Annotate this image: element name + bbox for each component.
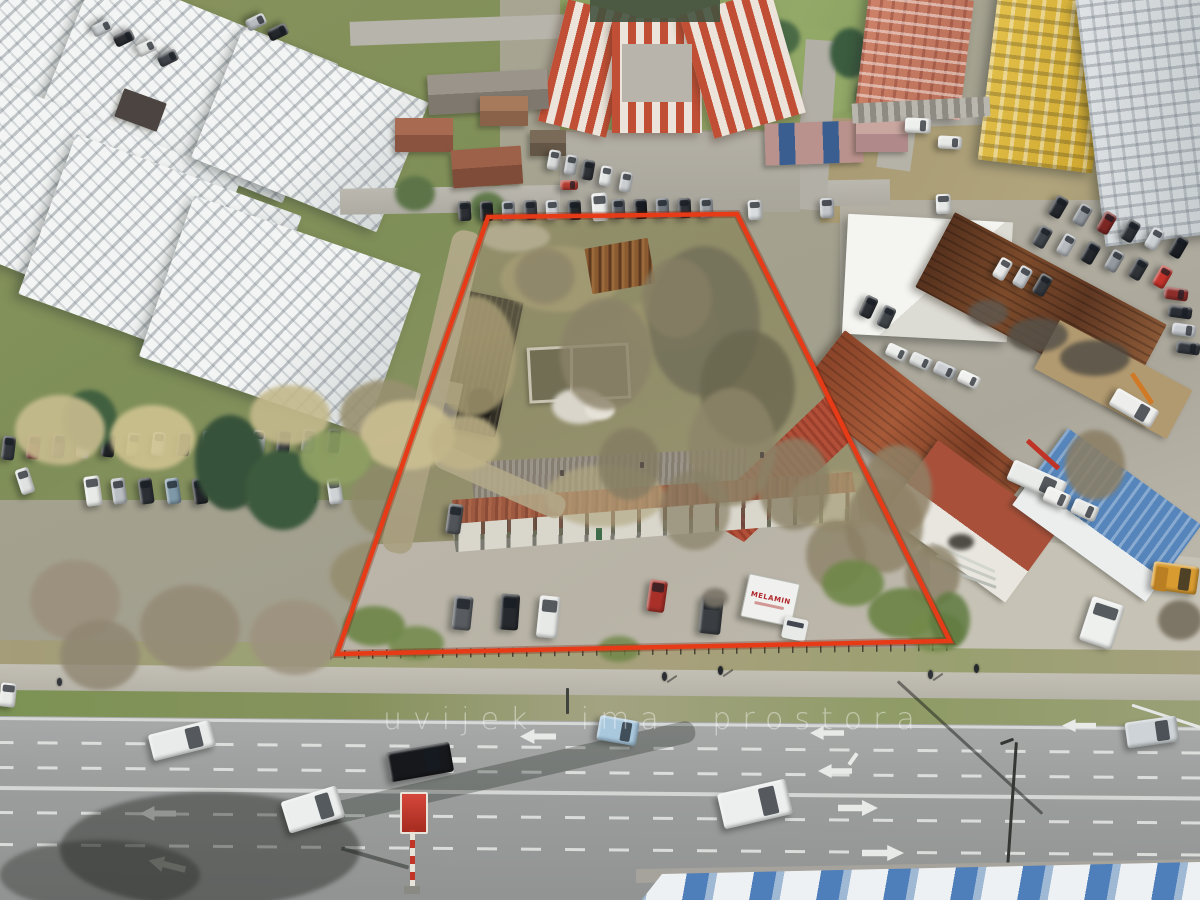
salmon-tower: [855, 0, 974, 120]
lane-divider: [0, 741, 1200, 755]
house-tan-roof: [480, 96, 528, 126]
lane-divider: [0, 811, 1200, 825]
truck-cab: [781, 616, 809, 643]
lane-divider: [0, 766, 1200, 780]
white-rubble-pile: [585, 398, 615, 420]
aerial-photo: MELAMIN uvijek ima prostora: [0, 0, 1200, 900]
bare-tree: [30, 560, 120, 640]
ruin-inner-wall: [570, 348, 573, 392]
green-door: [596, 528, 602, 540]
tower-courtyard: [622, 44, 692, 102]
house-small: [530, 130, 566, 156]
pink-gable-warehouse: [856, 112, 908, 152]
pink-warehouse-blue-doors: [764, 120, 863, 165]
centre-line: [0, 786, 1200, 801]
house-red-roof: [395, 118, 453, 152]
sign-base: [404, 886, 420, 894]
barn-hole: [468, 388, 494, 418]
paved-lot-below-tower: [560, 132, 800, 212]
lane-divider: [0, 843, 1200, 857]
striped-tower-roof: [590, 0, 720, 22]
house-red-roof: [451, 146, 523, 189]
sign-face: [400, 792, 428, 834]
sign-post: [410, 830, 415, 888]
watermark-text: uvijek ima prostora: [383, 702, 926, 737]
roadside-sign: [400, 790, 426, 896]
